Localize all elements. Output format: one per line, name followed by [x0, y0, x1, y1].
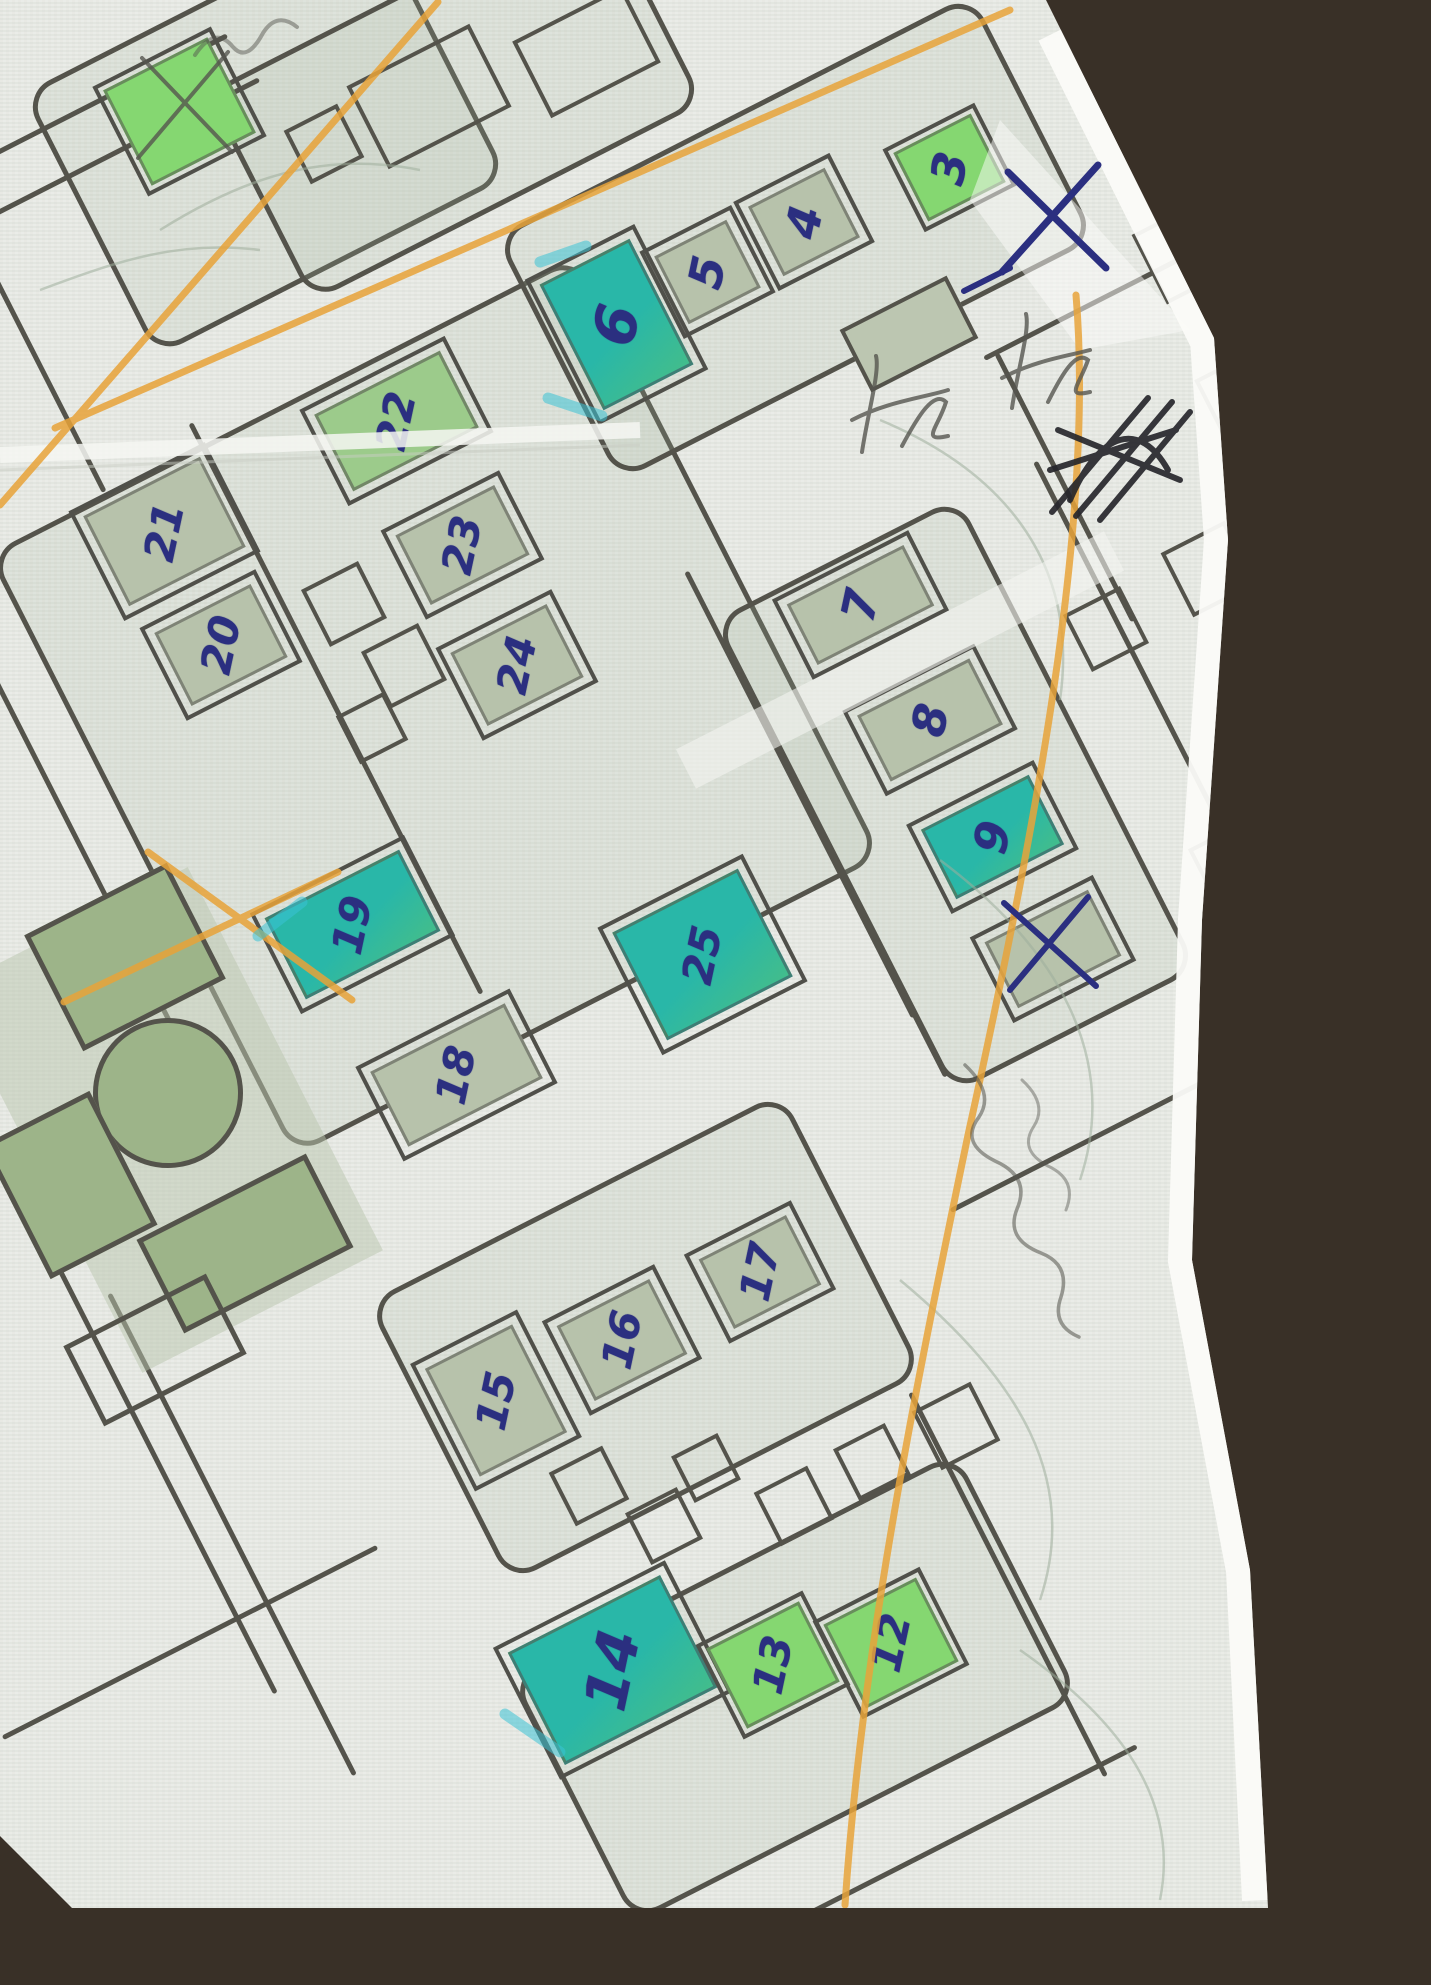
- small-building: [1260, 955, 1368, 1063]
- small-building: [1194, 341, 1310, 457]
- building-22-label: 22: [369, 388, 422, 454]
- building-13-label: 13: [746, 1632, 799, 1698]
- paper-sheet: 3 4 5 6 7 8 9 22 23 24 25 21 20 19 18 17…: [0, 0, 1431, 1908]
- small-building: [912, 1382, 1001, 1471]
- road-line: [995, 353, 1136, 623]
- building-9-label: 9: [966, 817, 1018, 858]
- building-25-label: 25: [675, 921, 728, 987]
- small-building: [1231, 654, 1341, 764]
- building-16-label: 16: [595, 1307, 648, 1373]
- small-building: [1132, 200, 1237, 305]
- building-23-label: 23: [435, 512, 488, 578]
- map-photo: 3 4 5 6 7 8 9 22 23 24 25 21 20 19 18 17…: [0, 0, 1431, 1908]
- building-3-label: 3: [923, 147, 975, 188]
- small-building: [1188, 815, 1290, 917]
- building-18-label: 18: [429, 1042, 482, 1108]
- building-15-label: 15: [469, 1367, 522, 1433]
- pencil-note-right-margin: [965, 1065, 1079, 1337]
- small-building: [1219, 1105, 1313, 1199]
- building-14-label: 14: [575, 1624, 649, 1715]
- small-building: [1161, 521, 1258, 618]
- building-8-label: 8: [904, 700, 956, 741]
- building-7-label: 7: [834, 585, 886, 626]
- building-19-label: 19: [325, 891, 378, 957]
- building-17-label: 17: [733, 1239, 786, 1305]
- building-24-label: 24: [490, 632, 543, 698]
- building-12-label: 12: [864, 1610, 917, 1676]
- building-4-label: 4: [778, 202, 830, 243]
- building-20-label: 20: [194, 612, 247, 678]
- building-6-label: 6: [583, 298, 648, 350]
- building-5-label: 5: [681, 252, 733, 293]
- building-21-label: 21: [137, 498, 190, 564]
